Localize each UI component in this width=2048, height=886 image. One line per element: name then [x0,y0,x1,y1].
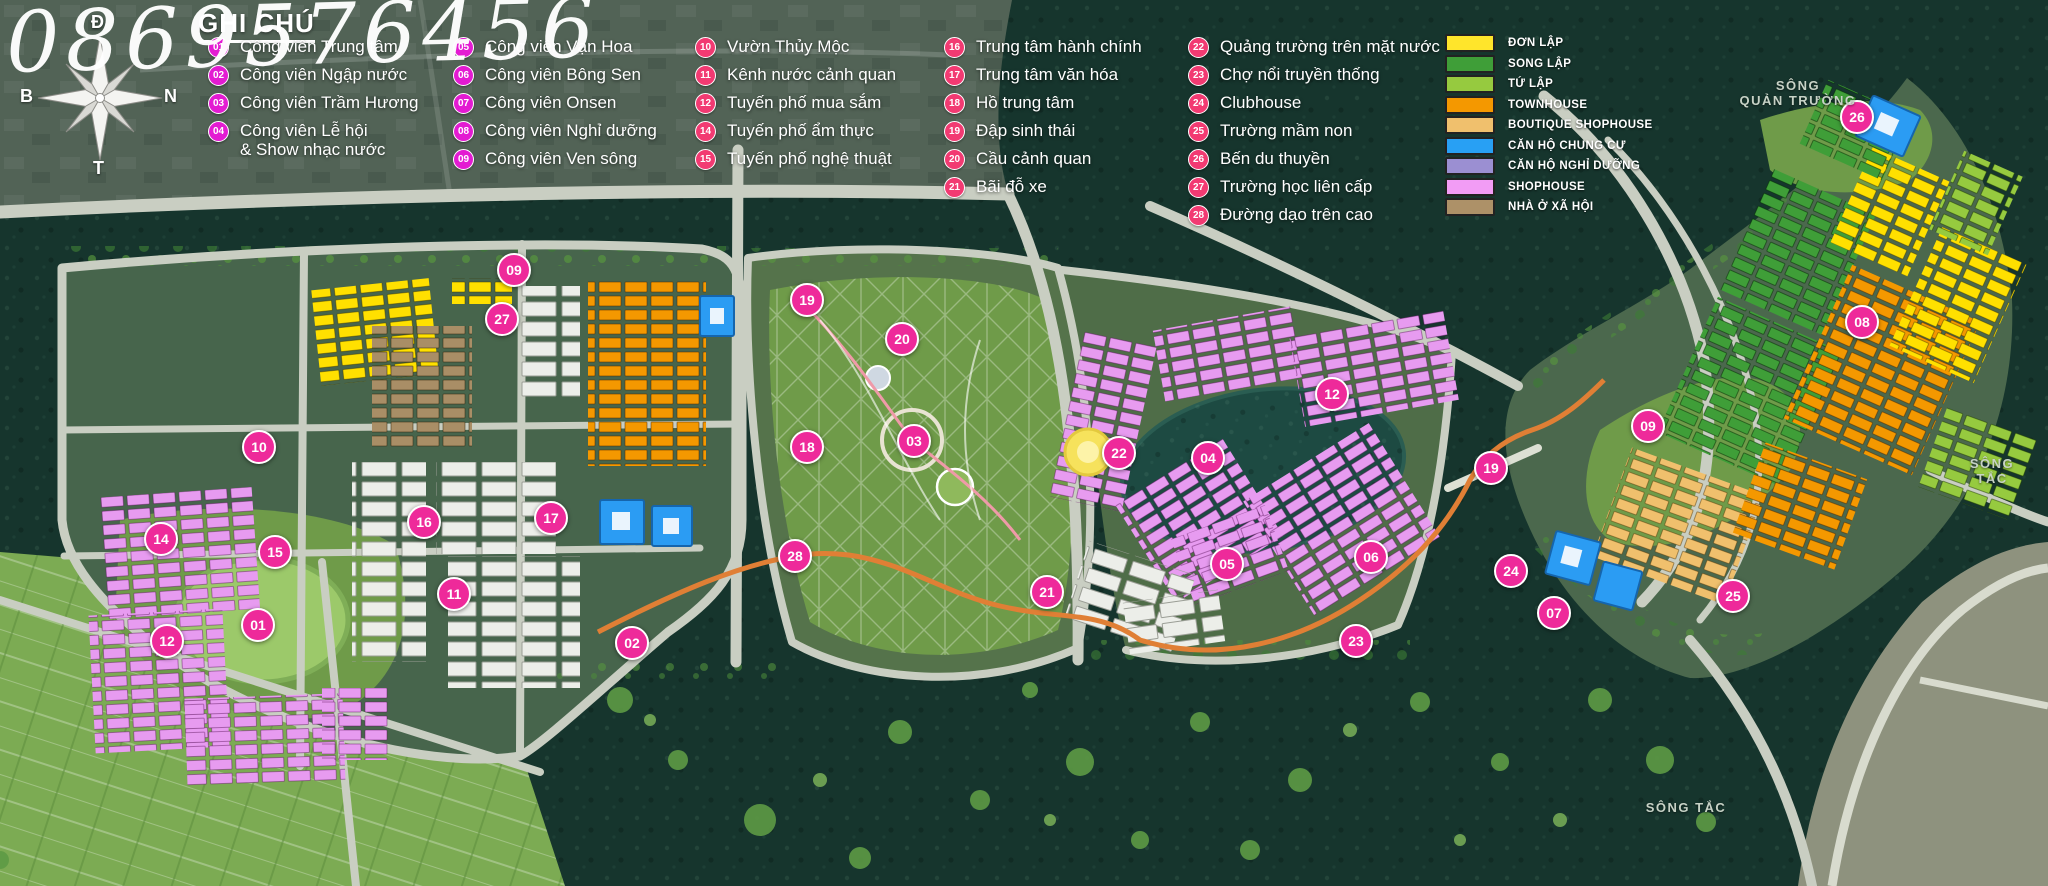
river-label-2: SÔNG TẮC [1964,456,2020,486]
map-marker-10: 10 [242,430,276,464]
legend-item-label: Vườn Thủy Mộc [727,37,849,56]
color-legend-row: CĂN HỘ CHUNG CƯ [1445,136,1653,157]
legend-item-11: 11Kênh nước cảnh quan [695,65,896,86]
color-swatch [1445,34,1495,52]
legend-item-label: Quảng trường trên mặt nước [1220,37,1440,56]
legend-item-02: 02Công viên Ngập nước [208,65,418,86]
color-legend-row: BOUTIQUE SHOPHOUSE [1445,115,1653,136]
color-legend-row: SHOPHOUSE [1445,177,1653,198]
map-marker-01: 01 [241,608,275,642]
legend-number-badge: 02 [208,65,229,86]
legend-item-label: Công viên Lễ hội & Show nhạc nước [240,121,385,159]
color-swatch [1445,137,1495,155]
legend-item-label: Chợ nổi truyền thống [1220,65,1380,84]
legend-item-26: 26Bến du thuyền [1188,149,1440,170]
legend-item-15: 15Tuyến phố nghệ thuật [695,149,896,170]
color-legend-row: TỨ LẬP [1445,74,1653,95]
legend-item-label: Công viên Nghỉ dưỡng [485,121,657,140]
legend-item-12: 12Tuyến phố mua sắm [695,93,896,114]
legend-number-badge: 27 [1188,177,1209,198]
compass-label-bottom: T [93,158,104,179]
legend-item-label: Công viên Trung tâm [240,37,398,56]
legend-item-label: Công viên Ven sông [485,149,637,168]
map-marker-21: 21 [1030,575,1064,609]
masterplan-canvas: 0927101415161711011202192018032822040521… [0,0,2048,886]
legend-column-1: 01Công viên Trung tâm02Công viên Ngập nư… [208,37,418,166]
legend-item-06: 06Công viên Bông Sen [453,65,657,86]
legend-item-23: 23Chợ nổi truyền thống [1188,65,1440,86]
legend-item-10: 10Vườn Thủy Mộc [695,37,896,58]
map-marker-12: 12 [1315,377,1349,411]
legend-item-label: Công viên Trầm Hương [240,93,418,112]
color-legend-row: NHÀ Ở XÃ HỘI [1445,197,1653,218]
legend-item-28: 28Đường dạo trên cao [1188,205,1440,226]
color-swatch-label: ĐƠN LẬP [1508,37,1563,49]
legend-number-badge: 09 [453,149,474,170]
color-legend-row: SONG LẬP [1445,54,1653,75]
map-marker-06: 06 [1354,540,1388,574]
map-marker-09: 09 [1631,409,1665,443]
map-marker-17: 17 [534,501,568,535]
color-swatch-label: TỨ LẬP [1508,78,1553,90]
legend-item-label: Đập sinh thái [976,121,1075,140]
legend-item-label: Hồ trung tâm [976,93,1074,112]
map-marker-19: 19 [1474,451,1508,485]
map-marker-14: 14 [144,522,178,556]
legend-item-27: 27Trường học liên cấp [1188,177,1440,198]
map-marker-05: 05 [1210,547,1244,581]
map-marker-02: 02 [615,626,649,660]
legend-item-20: 20Cầu cảnh quan [944,149,1142,170]
color-swatch [1445,55,1495,73]
legend-item-label: Clubhouse [1220,93,1301,112]
color-swatch [1445,96,1495,114]
map-marker-19: 19 [790,283,824,317]
map-marker-07: 07 [1537,596,1571,630]
color-swatch-label: CĂN HỘ CHUNG CƯ [1508,140,1626,152]
color-swatch [1445,116,1495,134]
legend-item-09: 09Công viên Ven sông [453,149,657,170]
color-legend: ĐƠN LẬPSONG LẬPTỨ LẬPTOWNHOUSEBOUTIQUE S… [1445,33,1653,218]
legend-item-25: 25Trường mầm non [1188,121,1440,142]
legend-number-badge: 07 [453,93,474,114]
legend-item-14: 14Tuyến phố ẩm thực [695,121,896,142]
legend-column-4: 16Trung tâm hành chính17Trung tâm văn hó… [944,37,1142,205]
compass-label-top: Đ [91,12,104,33]
map-marker-20: 20 [885,322,919,356]
legend-number-badge: 08 [453,121,474,142]
legend-item-label: Tuyến phố ẩm thực [727,121,874,140]
color-swatch-label: SHOPHOUSE [1508,181,1585,193]
map-marker-08: 08 [1845,305,1879,339]
color-swatch-label: TOWNHOUSE [1508,99,1587,111]
legend-item-03: 03Công viên Trầm Hương [208,93,418,114]
compass-label-right: N [164,86,177,107]
legend-number-badge: 05 [453,37,474,58]
legend-number-badge: 25 [1188,121,1209,142]
legend-column-2: 05Công viên Vạn Hoa06Công viên Bông Sen0… [453,37,657,177]
legend-item-16: 16Trung tâm hành chính [944,37,1142,58]
map-marker-15: 15 [258,535,292,569]
legend-number-badge: 16 [944,37,965,58]
legend-item-05: 05Công viên Vạn Hoa [453,37,657,58]
legend-item-22: 22Quảng trường trên mặt nước [1188,37,1440,58]
map-marker-09: 09 [497,253,531,287]
legend-number-badge: 11 [695,65,716,86]
map-marker-04: 04 [1191,441,1225,475]
legend-number-badge: 10 [695,37,716,58]
legend-item-18: 18Hồ trung tâm [944,93,1142,114]
legend-item-label: Công viên Onsen [485,93,616,112]
legend-item-label: Bến du thuyền [1220,149,1330,168]
map-marker-12: 12 [150,624,184,658]
legend-item-label: Kênh nước cảnh quan [727,65,896,84]
legend-item-label: Công viên Vạn Hoa [485,37,632,56]
legend-item-label: Bãi đỗ xe [976,177,1047,196]
color-swatch [1445,178,1495,196]
legend-item-label: Trường mầm non [1220,121,1352,140]
legend-number-badge: 17 [944,65,965,86]
color-swatch-label: BOUTIQUE SHOPHOUSE [1508,119,1653,131]
legend-number-badge: 19 [944,121,965,142]
color-legend-row: ĐƠN LẬP [1445,33,1653,54]
legend-column-5: 22Quảng trường trên mặt nước23Chợ nổi tr… [1188,37,1440,233]
map-marker-22: 22 [1102,436,1136,470]
legend-number-badge: 24 [1188,93,1209,114]
legend-number-badge: 26 [1188,149,1209,170]
legend-number-badge: 12 [695,93,716,114]
map-marker-24: 24 [1494,554,1528,588]
legend-number-badge: 28 [1188,205,1209,226]
legend-item-21: 21Bãi đỗ xe [944,177,1142,198]
legend-number-badge: 18 [944,93,965,114]
legend-number-badge: 14 [695,121,716,142]
legend-item-08: 08Công viên Nghỉ dưỡng [453,121,657,142]
legend-item-04: 04Công viên Lễ hội & Show nhạc nước [208,121,418,159]
compass-rose: Đ B N T [20,10,180,180]
legend-number-badge: 04 [208,121,229,142]
legend-item-label: Cầu cảnh quan [976,149,1091,168]
compass-star-icon [20,10,180,180]
legend-number-badge: 01 [208,37,229,58]
legend-number-badge: 22 [1188,37,1209,58]
map-marker-18: 18 [790,430,824,464]
legend-number-badge: 06 [453,65,474,86]
compass-label-left: B [20,86,33,107]
legend-item-17: 17Trung tâm văn hóa [944,65,1142,86]
map-marker-27: 27 [485,302,519,336]
legend-column-3: 10Vườn Thủy Mộc11Kênh nước cảnh quan12Tu… [695,37,896,177]
map-marker-25: 25 [1716,579,1750,613]
legend-number-badge: 23 [1188,65,1209,86]
color-swatch-label: NHÀ Ở XÃ HỘI [1508,201,1594,213]
map-marker-11: 11 [437,577,471,611]
legend-number-badge: 20 [944,149,965,170]
color-swatch [1445,75,1495,93]
legend-item-label: Tuyến phố nghệ thuật [727,149,892,168]
legend-item-01: 01Công viên Trung tâm [208,37,418,58]
color-swatch-label: CĂN HỘ NGHỈ DƯỠNG [1508,160,1640,172]
legend-number-badge: 15 [695,149,716,170]
river-label-1: SÔNG QUẢN TRƯỜNG [1739,78,1856,108]
legend-item-19: 19Đập sinh thái [944,121,1142,142]
map-marker-23: 23 [1339,624,1373,658]
legend-item-24: 24Clubhouse [1188,93,1440,114]
map-marker-28: 28 [778,539,812,573]
legend-item-label: Trung tâm hành chính [976,37,1142,56]
legend-item-label: Đường dạo trên cao [1220,205,1373,224]
color-legend-row: TOWNHOUSE [1445,95,1653,116]
river-label-3: SÔNG TẮC [1646,800,1727,815]
legend-item-label: Công viên Ngập nước [240,65,407,84]
color-legend-row: CĂN HỘ NGHỈ DƯỠNG [1445,156,1653,177]
map-marker-03: 03 [897,424,931,458]
legend-item-label: Tuyến phố mua sắm [727,93,881,112]
legend-item-label: Trường học liên cấp [1220,177,1372,196]
color-swatch [1445,157,1495,175]
legend-number-badge: 03 [208,93,229,114]
legend-item-label: Công viên Bông Sen [485,65,641,84]
legend-item-label: Trung tâm văn hóa [976,65,1118,84]
color-swatch [1445,198,1495,216]
legend-item-07: 07Công viên Onsen [453,93,657,114]
legend-number-badge: 21 [944,177,965,198]
map-marker-16: 16 [407,505,441,539]
color-swatch-label: SONG LẬP [1508,58,1571,70]
